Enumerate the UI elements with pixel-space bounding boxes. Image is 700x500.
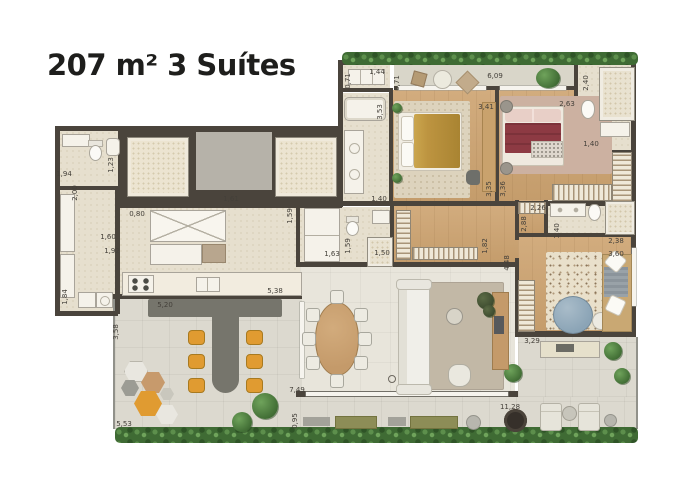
kitchen-counter (150, 244, 202, 265)
suite2-throw (531, 141, 563, 158)
toilet-bowl (346, 221, 359, 236)
terrace-plant (604, 342, 622, 360)
sofa-arm (396, 279, 432, 290)
double-vanity (550, 203, 586, 217)
bar-stool (246, 378, 263, 393)
elevator-cab-1 (128, 138, 188, 196)
dining-table (315, 302, 359, 376)
basin (349, 169, 360, 180)
balcony-cabinet (348, 69, 385, 85)
lounger (578, 403, 600, 431)
pouf (604, 414, 617, 427)
wardrobe (552, 184, 612, 201)
double-vanity (344, 130, 364, 194)
sink (372, 210, 390, 224)
elevator-cab-2 (276, 138, 336, 196)
toilet-bowl (89, 145, 102, 161)
bedside-plant (392, 103, 402, 113)
dining-chair (330, 290, 344, 304)
floor-lamp (388, 375, 396, 383)
side-table (500, 100, 513, 113)
dining-chair (302, 332, 316, 346)
terrace-bench-object (556, 344, 574, 352)
dining-chair (306, 308, 320, 322)
palm-plant (536, 68, 560, 88)
shower (600, 68, 634, 120)
bar-counter (148, 299, 282, 317)
closet (412, 247, 478, 260)
terrace-plant (252, 393, 278, 419)
dining-chair (354, 356, 368, 370)
bench-cushion (335, 416, 377, 429)
suite2-bed (502, 106, 564, 166)
living-plant (483, 305, 495, 317)
lounger (540, 403, 562, 431)
round-table (562, 406, 577, 421)
tall-units (304, 208, 340, 262)
bar-counter-leg (212, 316, 239, 393)
bar-stool (246, 354, 263, 369)
vanity (62, 134, 90, 147)
kitchen-cabinet (202, 244, 226, 263)
terrace-plant (614, 368, 630, 384)
bench (303, 417, 330, 426)
shaft-void (150, 210, 226, 242)
sofa-back (399, 285, 407, 389)
wall (342, 88, 390, 92)
shelving (60, 254, 75, 298)
wall (296, 262, 518, 267)
balcony-round-table (433, 70, 452, 89)
wall (338, 60, 343, 207)
daybed (602, 254, 632, 332)
side-table (500, 162, 513, 175)
suite1-blanket (414, 114, 460, 168)
cooktop (128, 275, 154, 293)
hedge-top (342, 52, 638, 65)
wall (57, 186, 118, 190)
bar-stool (188, 378, 205, 393)
bathtub (344, 97, 386, 121)
wall (55, 311, 118, 316)
bar-stool (188, 354, 205, 369)
sofa (398, 284, 430, 390)
laundry-tub (78, 292, 96, 308)
window (500, 86, 566, 90)
bar-stool (188, 330, 205, 345)
dining-chair (354, 308, 368, 322)
bedside-plant (392, 173, 402, 183)
closet (518, 202, 546, 214)
suite1-bed (398, 112, 462, 171)
terrace-plant (232, 412, 252, 432)
toilet (581, 100, 595, 119)
double-sink (196, 277, 220, 292)
wardrobe (612, 152, 632, 202)
pouf (466, 415, 481, 430)
wall (55, 126, 342, 131)
bench (388, 417, 406, 426)
pillow (604, 294, 627, 317)
window (632, 248, 636, 306)
closet (396, 210, 411, 260)
shower (368, 238, 392, 266)
wall (296, 205, 300, 267)
toilet (588, 204, 601, 221)
sink (106, 138, 120, 156)
washer-door (100, 296, 110, 306)
sink-counter (600, 122, 630, 137)
dining-chair (306, 356, 320, 370)
pillow (401, 116, 414, 141)
suite2-pillows (505, 109, 561, 122)
dining-chair (358, 332, 372, 346)
floor-plan: 207 m² 3 Suítes (0, 0, 700, 500)
shower (606, 202, 634, 234)
bar-stool (246, 330, 263, 345)
desk-chair (466, 170, 480, 185)
armchair (448, 364, 471, 387)
sofa-arm (396, 384, 432, 395)
shelving (60, 194, 75, 252)
washer (96, 292, 113, 308)
wardrobe (518, 280, 535, 332)
tv (494, 316, 504, 334)
basin (349, 143, 360, 154)
dining-chair (330, 374, 344, 388)
fire-pit (504, 409, 527, 432)
pillow (401, 142, 414, 167)
suite1-desk (482, 102, 496, 192)
page-title: 207 m² 3 Suítes (47, 48, 296, 82)
round-side-table (446, 308, 463, 325)
blue-pouf (553, 296, 593, 334)
elevator-vestibule (196, 132, 272, 190)
bench-cushion (410, 416, 458, 429)
